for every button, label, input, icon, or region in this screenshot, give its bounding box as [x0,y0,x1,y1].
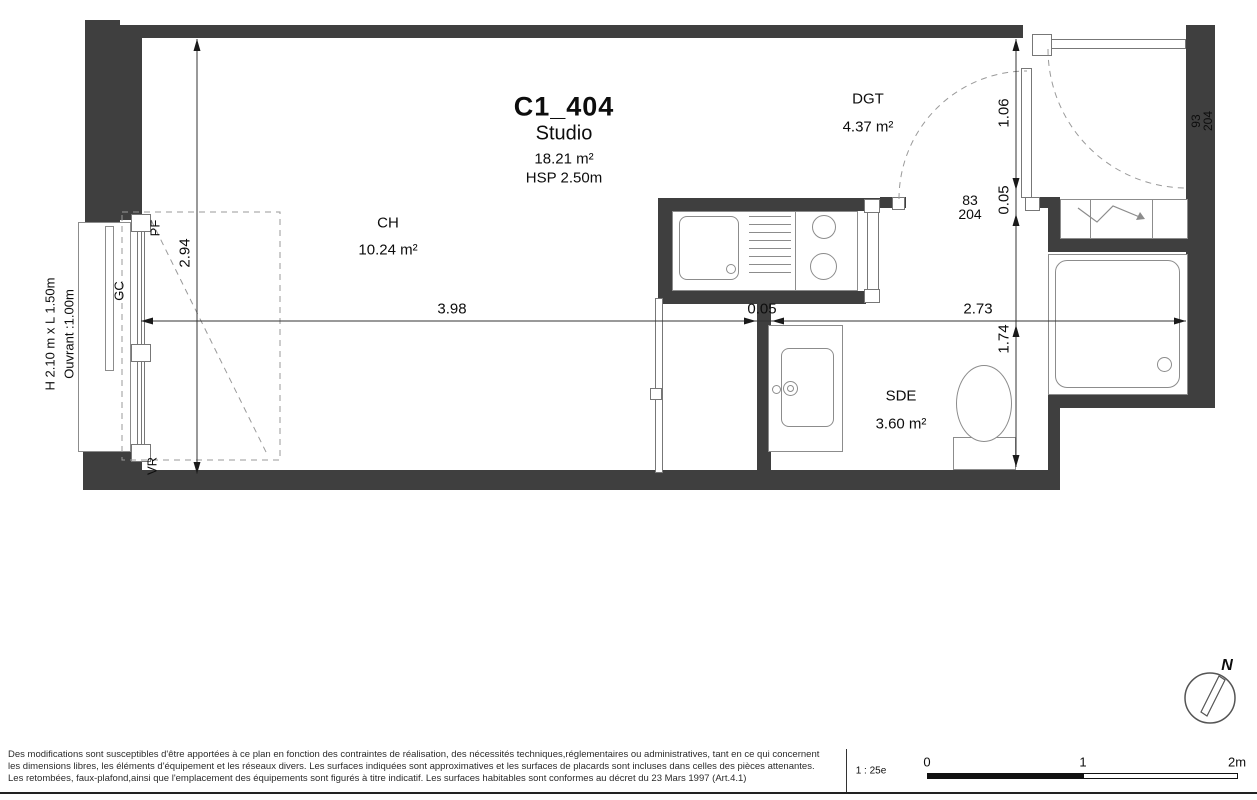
scale-bar-filled [927,773,1083,779]
scale-tick-2m: 2m [1228,755,1246,770]
dim-width-ch: 3.98 [437,301,466,318]
dimension-arrows [141,39,1186,474]
footer-rule [0,792,1257,794]
disclaimer-line-1: Des modifications sont susceptibles d'êt… [8,749,819,760]
door-height: 204 [1202,111,1214,131]
scale-bar-empty [1083,773,1238,779]
dim-height-sde: 1.74 [996,324,1013,353]
door-swing-arc-entry [1048,49,1187,188]
footer-divider [846,749,847,793]
door-size-entry: 93 204 [1190,111,1214,131]
floor-plan-canvas: C1_404 Studio 18.21 m² HSP 2.50m CH 10.2… [0,0,1257,800]
disclaimer-line-2: les dimensions libres, les éléments d'éq… [8,761,815,772]
closet-zigzag-icon [1078,206,1145,222]
guardrail-label: GC [112,281,127,301]
door-height: 204 [958,207,981,221]
room-label-ch: CH [377,215,399,232]
disclaimer-line-3: Les retombées, faux-plafond,ainsi que l'… [8,773,746,784]
dimension-lines [141,39,1186,474]
room-area-ch: 10.24 m² [358,242,417,259]
unit-code: C1_404 [514,92,615,123]
plan-linework [0,0,1257,800]
scale-tick-1: 1 [1079,755,1086,770]
unit-ceiling-height: HSP 2.50m [526,170,602,187]
dim-height-dgt: 1.06 [996,98,1013,127]
door-width: 83 [958,193,981,207]
scale-tick-0: 0 [923,755,930,770]
door-swing-arc-dgt [899,71,1027,199]
dim-partition: 0.05 [747,301,776,318]
dim-height-ch: 2.94 [177,238,194,267]
dim-width-sde: 2.73 [963,301,992,318]
room-label-sde: SDE [886,388,917,405]
north-compass-icon [1185,673,1235,723]
north-label: N [1221,657,1233,675]
room-label-dgt: DGT [852,91,884,108]
room-area-dgt: 4.37 m² [843,119,894,136]
window-swing-dashes [122,212,280,460]
window-pf-label: PF [148,220,163,237]
shutter-vr-label: VR [145,457,160,475]
window-size-label: H 2.10 m x L 1.50m [43,278,58,391]
window-opening-label: Ouvrant :1.00m [62,289,77,379]
door-size-interior: 83 204 [958,193,981,221]
unit-type: Studio [536,123,593,146]
scale-ratio-label: 1 : 25e [856,766,887,777]
unit-area: 18.21 m² [534,151,593,168]
dim-wall-thickness: 0.05 [996,185,1013,214]
room-area-sde: 3.60 m² [876,416,927,433]
